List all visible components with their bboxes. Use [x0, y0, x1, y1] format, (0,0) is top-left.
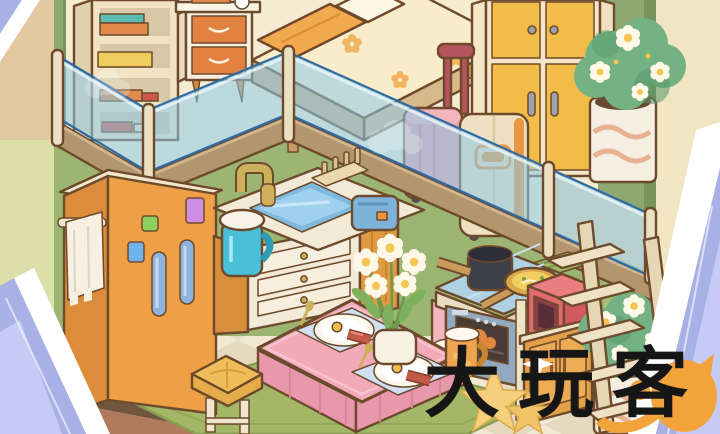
fridge-magnet-green [142, 216, 158, 231]
fridge-magnet-purple [186, 198, 204, 223]
game-screenshot: 大玩客 [0, 0, 720, 434]
fridge-magnet-blue [128, 242, 144, 262]
flower-plant-upper[interactable] [574, 18, 686, 182]
water-jug [220, 210, 270, 276]
watermark-text: 大玩客 [424, 346, 706, 422]
toaster [352, 196, 398, 230]
